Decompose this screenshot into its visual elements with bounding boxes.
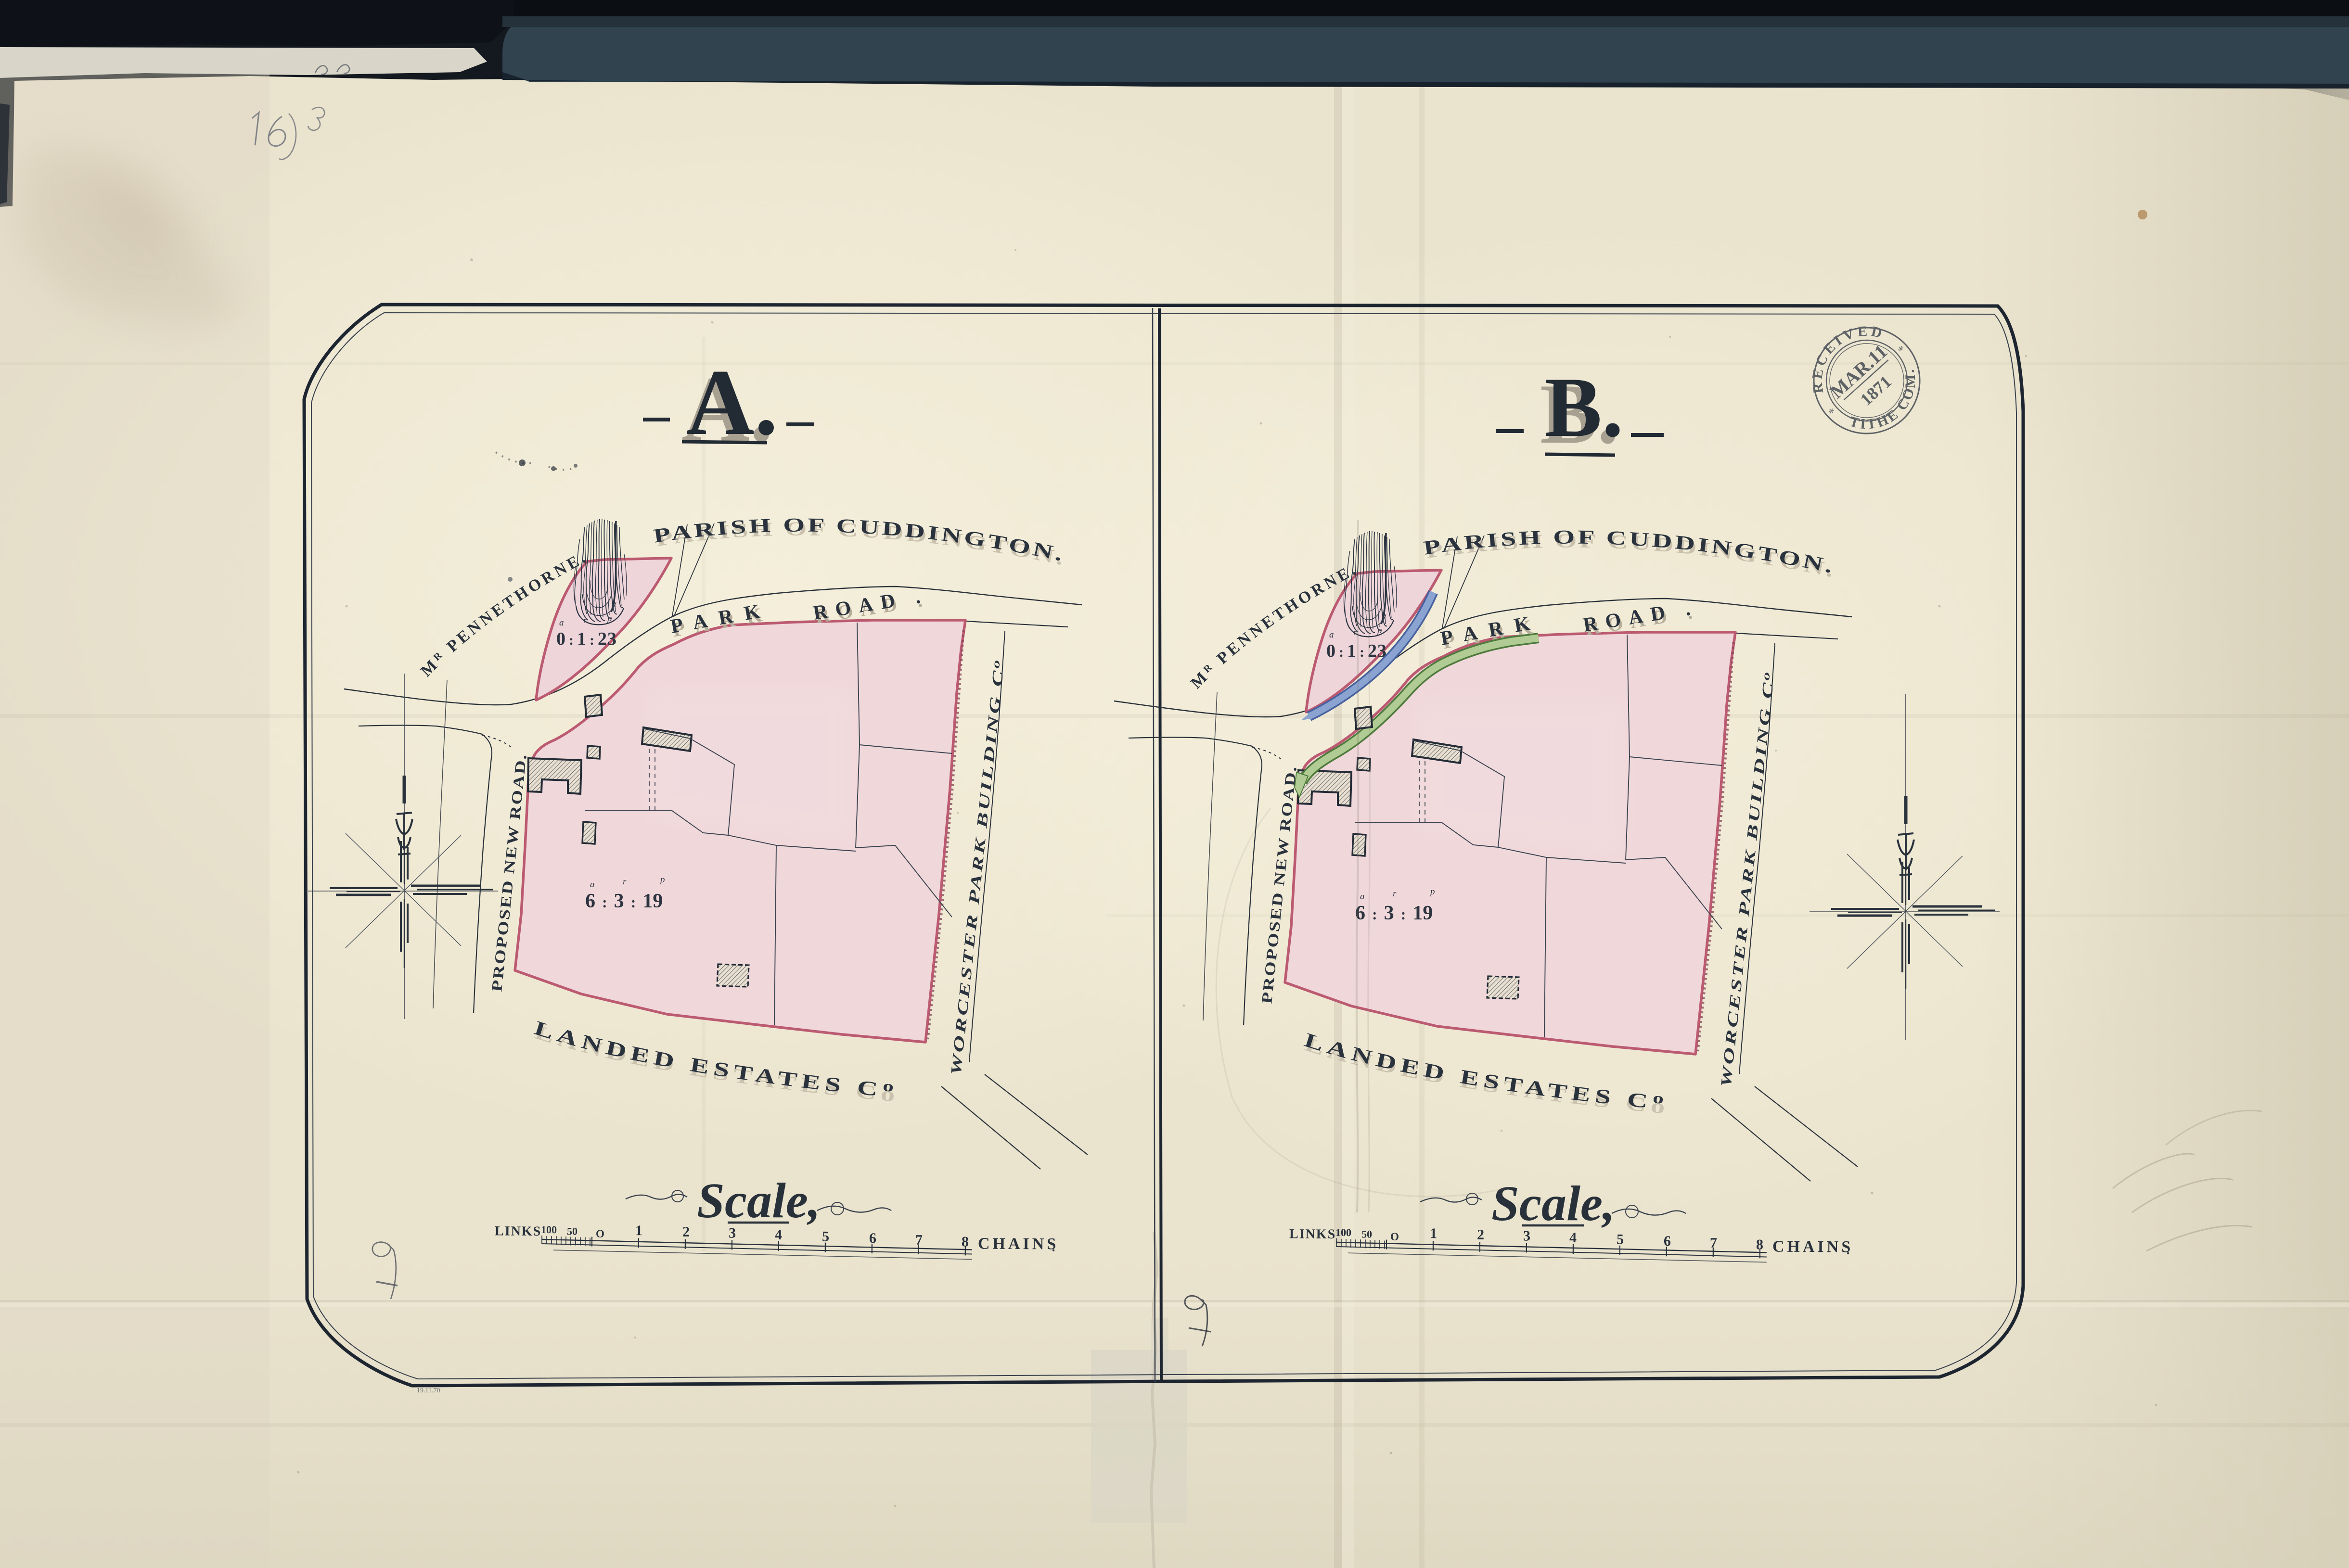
svg-text:LINKS: LINKS <box>495 1224 541 1239</box>
svg-text:50: 50 <box>567 1225 578 1237</box>
svg-text:A.: A. <box>686 350 778 455</box>
svg-text:p: p <box>659 875 665 885</box>
svg-text:CHAINS: CHAINS <box>978 1235 1059 1253</box>
svg-text:4: 4 <box>775 1227 782 1243</box>
svg-text:r: r <box>583 615 587 625</box>
svg-text:.: . <box>1052 1240 1055 1254</box>
svg-text:O: O <box>596 1228 604 1240</box>
svg-text:6: 6 <box>869 1230 876 1246</box>
svg-text:Scale,: Scale, <box>697 1173 821 1228</box>
svg-text:5: 5 <box>822 1229 829 1245</box>
svg-text:r: r <box>623 877 627 887</box>
svg-text:100: 100 <box>541 1224 557 1236</box>
svg-text:a: a <box>590 880 595 890</box>
svg-text:19.11.70: 19.11.70 <box>417 1387 440 1394</box>
svg-text:a: a <box>559 618 564 628</box>
svg-text:p: p <box>606 613 612 624</box>
svg-text:B.: B. <box>1545 359 1623 455</box>
svg-text:1: 1 <box>635 1223 642 1238</box>
svg-text:2: 2 <box>682 1224 690 1240</box>
